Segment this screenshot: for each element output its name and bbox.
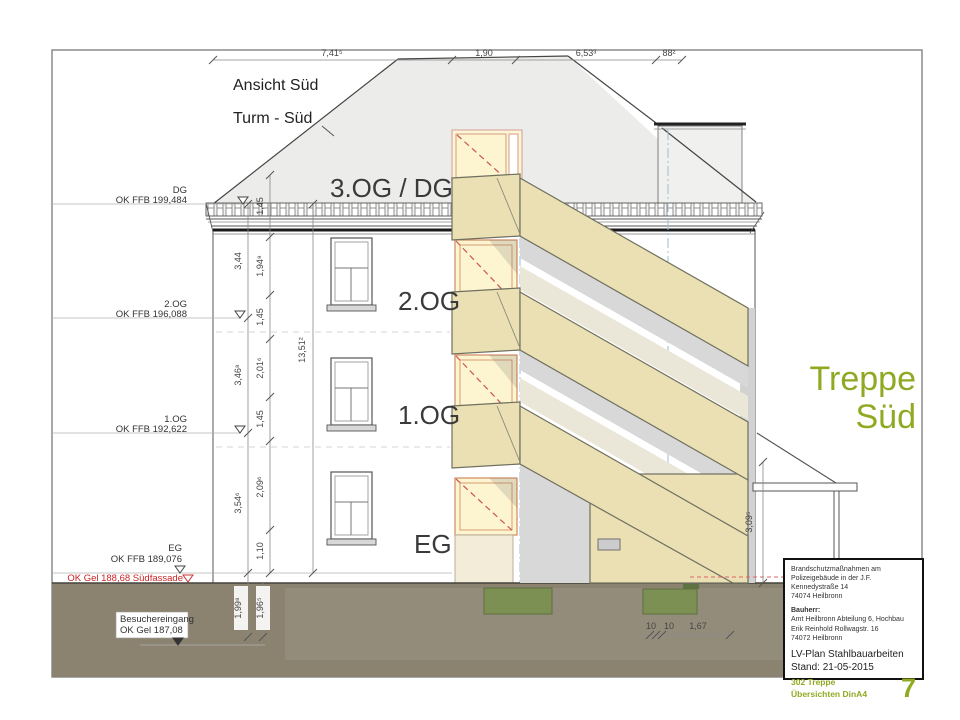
dim-1_45b: 1,45 bbox=[255, 308, 265, 326]
visitor-line2: OK Gel 187,08 bbox=[120, 625, 183, 636]
project-line2: Polizeigebäude in der J.F. Kennedystraße… bbox=[791, 574, 916, 592]
level-eg-name: EG bbox=[168, 543, 182, 554]
plan-date: Stand: 21-05-2015 bbox=[791, 661, 916, 674]
landing-1og bbox=[452, 402, 520, 468]
client-line1: Amt Heilbronn Abteilung 6, Hochbau bbox=[791, 615, 916, 624]
floor-label-2og: 2.OG bbox=[398, 286, 460, 316]
plan-sheet: DG OK FFB 199,484 2.OG OK FFB 196,088 1.… bbox=[0, 0, 960, 720]
dim-2_096: 2,09⁶ bbox=[255, 476, 265, 498]
sheet-number: 7 bbox=[901, 676, 916, 700]
dim-3_468: 3,46⁸ bbox=[233, 364, 243, 386]
client-label: Bauherr: bbox=[791, 606, 916, 615]
drawing-subtitle: Turm - Süd bbox=[233, 110, 312, 127]
dim-1_45c: 1,45 bbox=[255, 410, 265, 428]
dim-top-1: 7,41⁵ bbox=[321, 48, 343, 58]
level-1og-value: OK FFB 192,622 bbox=[116, 424, 187, 435]
door-eg-panel bbox=[455, 535, 513, 583]
side-label-sued: Süd bbox=[856, 398, 917, 436]
dim-1_965: 1,96⁵ bbox=[255, 597, 265, 619]
visitor-line1: Besuchereingang bbox=[120, 614, 194, 625]
window-1og bbox=[327, 472, 376, 545]
floor-label-eg: EG bbox=[414, 529, 452, 559]
dim-10b: 10 bbox=[664, 621, 674, 631]
plan-number-line2: Übersichten DinA4 bbox=[791, 689, 867, 700]
dim-3_546: 3,54⁶ bbox=[233, 492, 243, 514]
plan-number-line1: 302 Treppe bbox=[791, 677, 867, 688]
entry-step bbox=[598, 539, 620, 550]
level-ground-red: OK Gel 188,68 Südfassade bbox=[67, 573, 183, 584]
dim-1_45a: 1,45 bbox=[255, 197, 265, 215]
floor-label-dg: 3.OG / DG bbox=[330, 173, 453, 203]
plan-type: LV-Plan Stahlbauarbeiten bbox=[791, 648, 916, 661]
project-line3: 74074 Heilbronn bbox=[791, 592, 916, 601]
level-dg-value: OK FFB 199,484 bbox=[116, 195, 187, 206]
dim-1_998: 1,99⁸ bbox=[233, 597, 243, 619]
dim-3_095: 3,09⁵ bbox=[744, 511, 754, 533]
dim-1_67: 1,67 bbox=[689, 621, 707, 631]
door-eg bbox=[455, 478, 517, 583]
landing-dg bbox=[452, 174, 520, 240]
client-line2: Erik Reinhold Rollwagstr. 16 bbox=[791, 625, 916, 634]
side-label-treppe: Treppe bbox=[810, 360, 916, 398]
drawing-title: Ansicht Süd bbox=[233, 77, 318, 94]
project-line1: Brandschutzmaßnahmen am bbox=[791, 565, 916, 574]
dim-1_949: 1,94⁹ bbox=[255, 255, 265, 277]
dim-10a: 10 bbox=[646, 621, 656, 631]
floor-label-1og: 1.OG bbox=[398, 400, 460, 430]
client-line3: 74072 Heilbronn bbox=[791, 634, 916, 643]
level-2og-value: OK FFB 196,088 bbox=[116, 309, 187, 320]
level-eg-value: OK FFB 189,076 bbox=[111, 554, 182, 565]
dim-2_016: 2,01⁶ bbox=[255, 357, 265, 379]
landing-2og bbox=[452, 288, 520, 354]
dim-1_10: 1,10 bbox=[255, 542, 265, 560]
dim-13_512: 13,51² bbox=[297, 337, 307, 363]
dim-top-3: 6,53³ bbox=[576, 48, 597, 58]
window-2og bbox=[327, 358, 376, 431]
title-block: Brandschutzmaßnahmen am Polizeigebäude i… bbox=[783, 558, 924, 680]
dim-top-2: 1,90 bbox=[475, 48, 493, 58]
dim-3_44: 3,44 bbox=[233, 252, 243, 270]
dim-top-4: 88² bbox=[662, 48, 675, 58]
window-3og bbox=[327, 238, 376, 311]
